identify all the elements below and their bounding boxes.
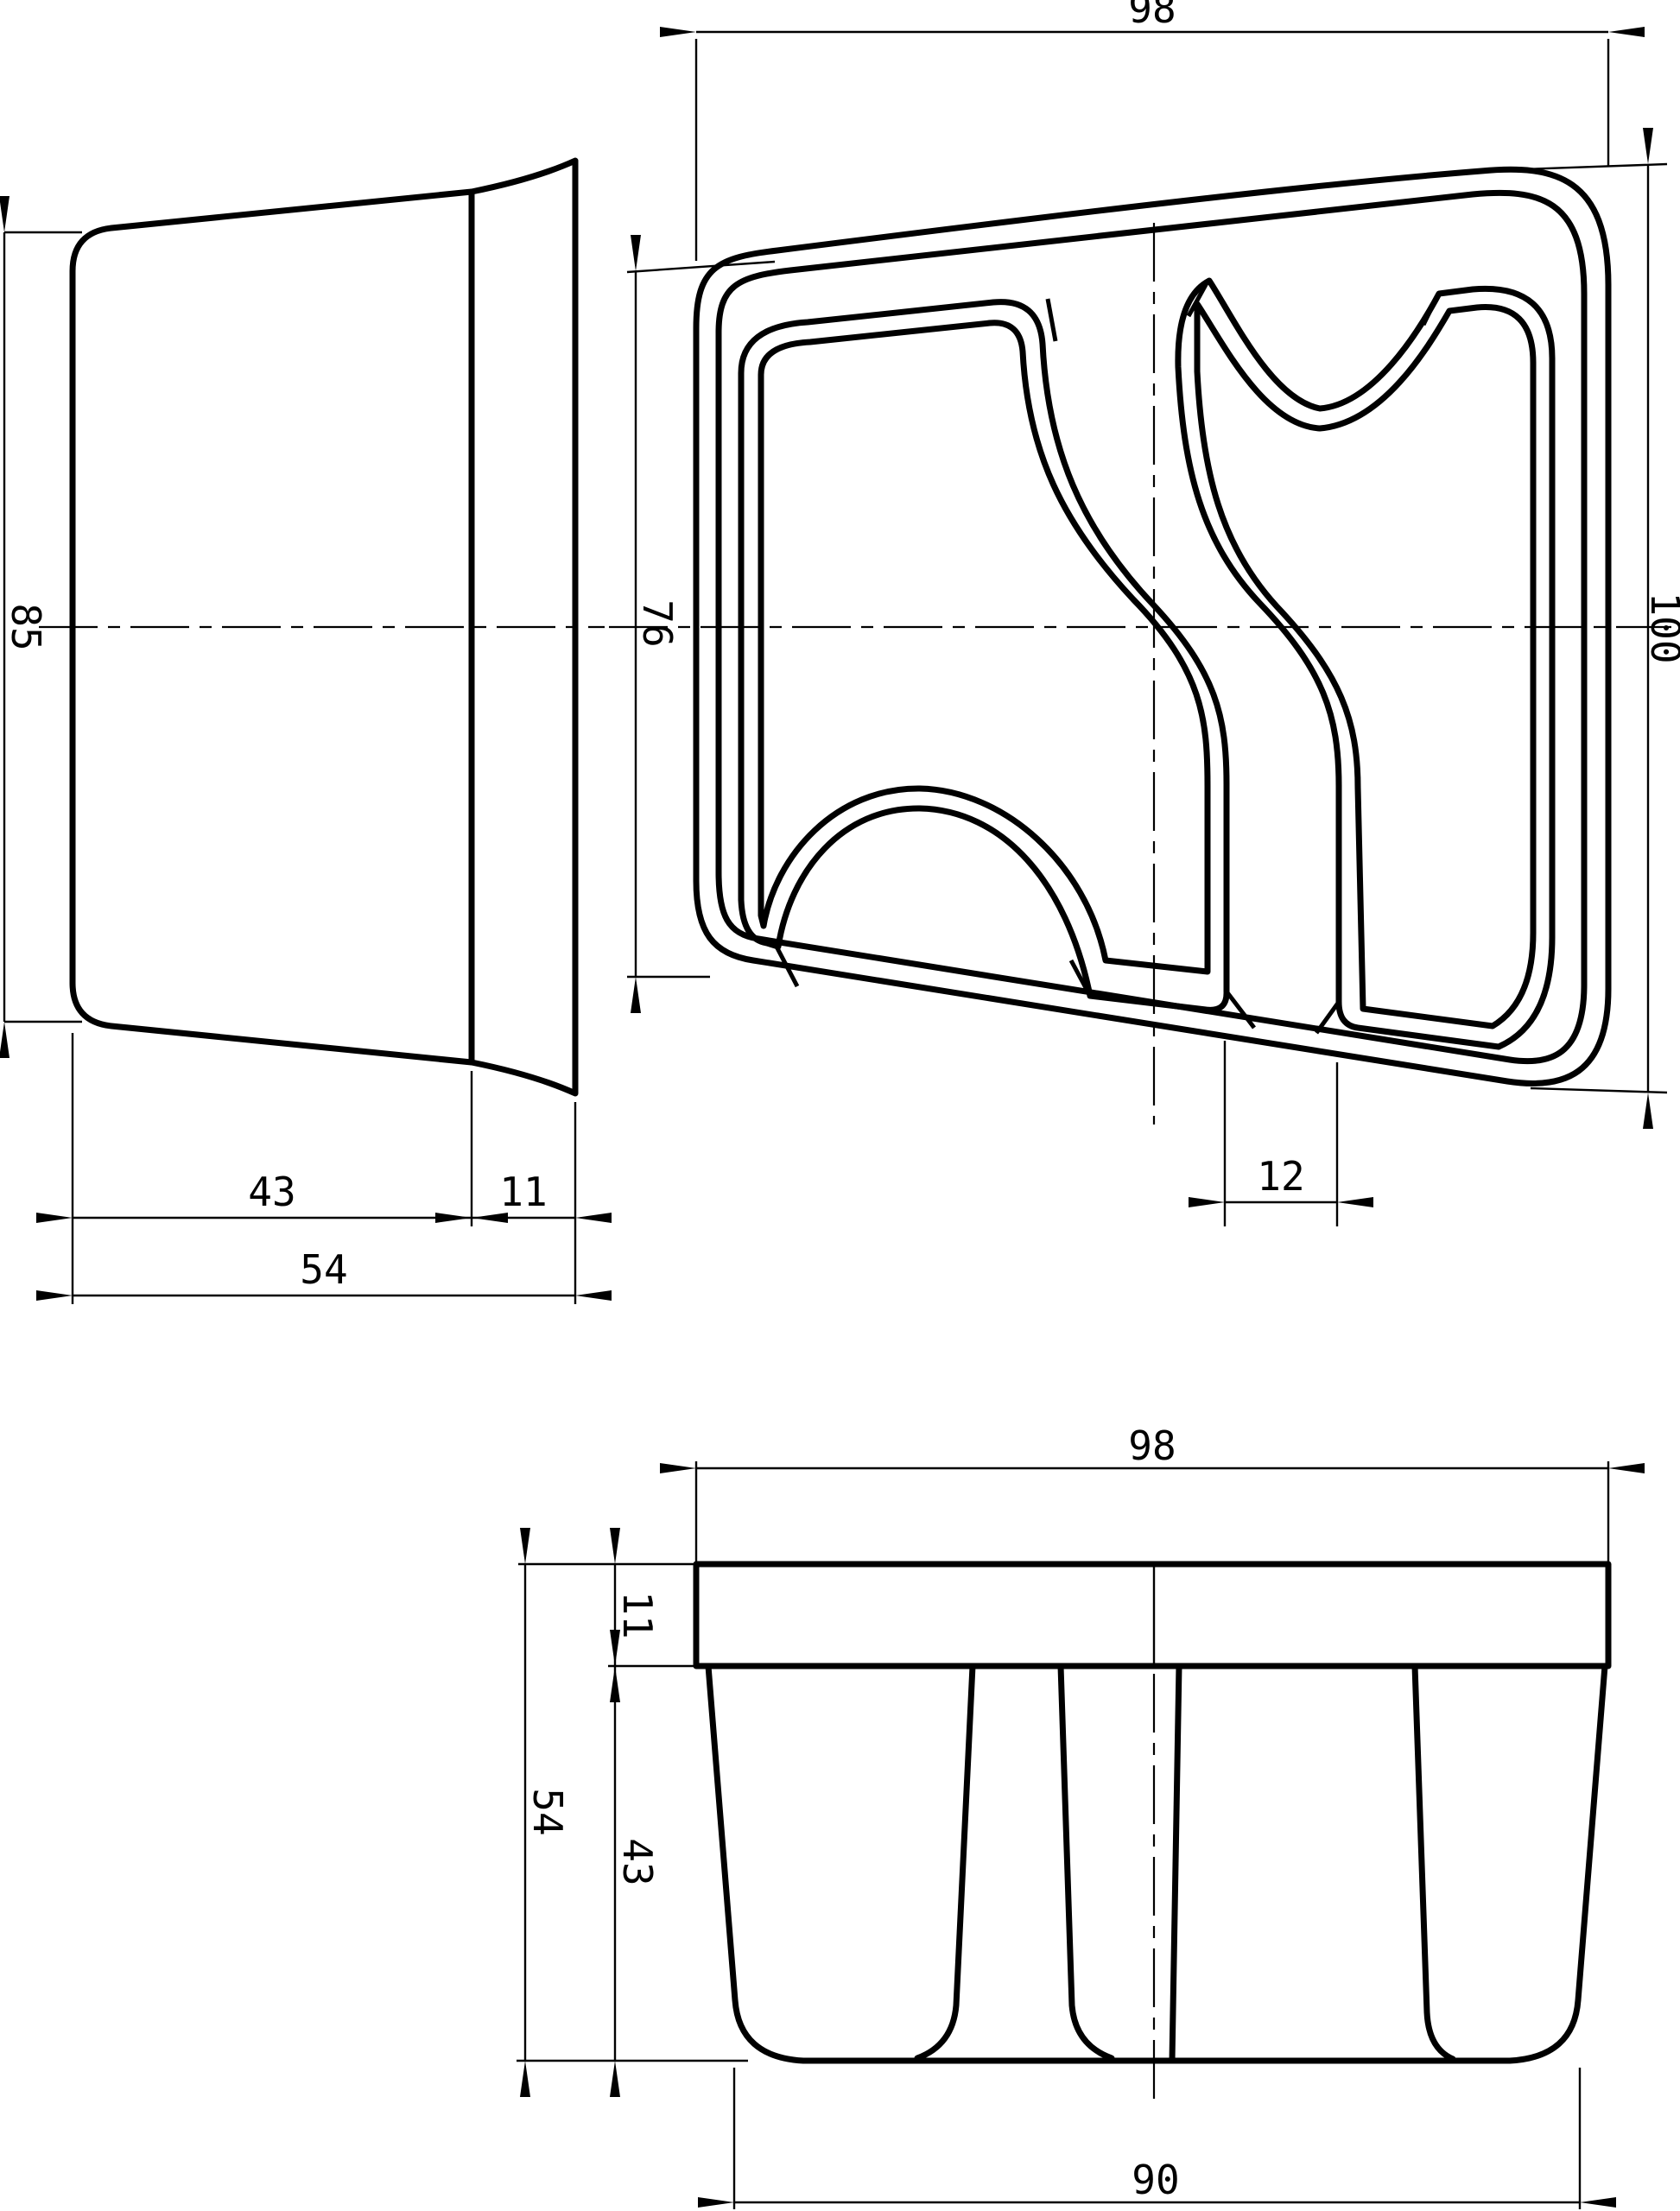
drawing-sheet: 85 43 11 54 <box>0 0 1680 2211</box>
bottom-view-wall-line-c <box>1172 1666 1179 2061</box>
facet-tick <box>1423 293 1439 325</box>
front-view: 98 76 100 12 <box>609 0 1680 1226</box>
dim-label-bottom-base-width: 90 <box>1132 2157 1179 2203</box>
cad-drawing: 85 43 11 54 <box>0 0 1680 2211</box>
dim-label-side-height: 85 <box>3 603 49 650</box>
dim-label-side-body-width: 43 <box>248 1169 295 1215</box>
dim-label-bottom-width: 98 <box>1128 1422 1176 1469</box>
ext-line <box>627 262 775 272</box>
dim-label-front-left-height: 76 <box>634 599 681 647</box>
bottom-view-wall-line-d <box>1415 1666 1453 2059</box>
dim-label-divider-width: 12 <box>1257 1153 1304 1200</box>
bottom-view-body-outline <box>708 1666 1605 2061</box>
dim-label-front-width: 98 <box>1128 0 1176 32</box>
dim-label-front-right-height: 100 <box>1642 592 1680 663</box>
divider-top-edge <box>1048 299 1056 341</box>
dim-label-bottom-body-depth: 43 <box>614 1838 661 1885</box>
dim-label-side-rim-width: 11 <box>499 1169 547 1215</box>
left-pocket-inner-edge <box>761 323 1208 972</box>
dim-label-bottom-total-depth: 54 <box>524 1788 571 1835</box>
right-pocket-outer-edge <box>1178 281 1552 1047</box>
bottom-view: 98 54 11 43 90 <box>517 1422 1608 2209</box>
dim-label-side-total-width: 54 <box>300 1246 347 1293</box>
bottom-view-wall-line-a <box>917 1666 973 2058</box>
facet-tick <box>1227 991 1254 1028</box>
dim-label-bottom-rim-depth: 11 <box>614 1591 661 1638</box>
right-pocket-inner-edge <box>1197 304 1533 1026</box>
ext-line <box>1531 1088 1667 1093</box>
bottom-view-wall-line-b <box>1061 1666 1112 2058</box>
side-view: 85 43 11 54 <box>3 161 605 1304</box>
ext-line <box>1523 164 1667 169</box>
bottom-view-rim-band <box>696 1564 1608 1666</box>
